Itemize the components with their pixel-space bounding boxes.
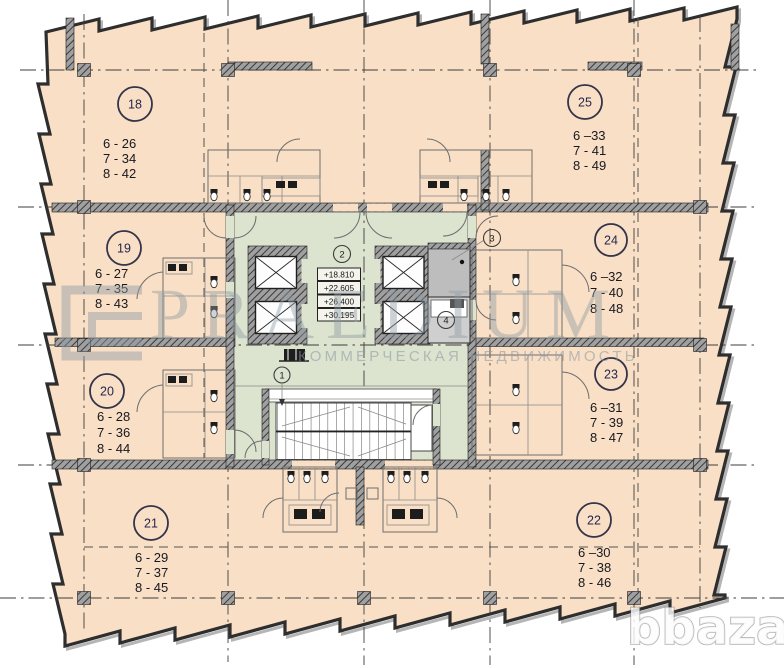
door-opening <box>262 441 269 458</box>
unit-number: 22 <box>587 514 601 528</box>
wall-segment <box>66 18 74 70</box>
counter-fixture <box>168 264 176 271</box>
column-marker <box>78 459 91 472</box>
basin-fixture <box>294 509 307 519</box>
column-marker <box>222 592 235 605</box>
counter-fixture <box>288 181 297 188</box>
unit-assignment: 7 - 39 <box>590 415 623 430</box>
wc-icon <box>304 471 311 483</box>
stair-treads-upper <box>276 403 411 431</box>
column-marker <box>222 64 235 77</box>
stair-treads-lower <box>276 432 411 460</box>
door-opening <box>226 430 234 454</box>
wc-icon <box>244 189 251 201</box>
door-opening <box>468 216 476 238</box>
unit-label-25: 25 6 –33 7 - 41 8 - 49 <box>568 85 606 173</box>
counter-fixture <box>179 264 187 271</box>
unit-number: 25 <box>578 96 592 110</box>
unit-assignment: 8 - 47 <box>590 430 623 445</box>
svg-text:1: 1 <box>279 371 284 382</box>
wc-icon <box>264 189 271 201</box>
unit-number: 18 <box>128 98 142 112</box>
basin-fixture <box>312 509 325 519</box>
unit-assignment: 7 - 38 <box>578 560 611 575</box>
wc-icon <box>461 189 468 201</box>
wc-icon <box>388 471 395 483</box>
wall-segment <box>52 460 708 469</box>
counter-fixture <box>276 181 285 188</box>
door-opening <box>443 204 467 212</box>
wall-segment <box>428 243 470 249</box>
unit-assignment: 6 - 26 <box>103 136 136 151</box>
wc-icon <box>513 422 520 434</box>
wc-icon <box>211 189 218 201</box>
column-marker <box>694 201 707 214</box>
unit-assignment: 6 - 28 <box>97 409 130 424</box>
unit-assignment: 7 - 36 <box>97 425 130 440</box>
door-opening <box>433 404 440 426</box>
wc-icon <box>503 189 510 201</box>
door-opening <box>226 216 234 238</box>
unit-assignment: 7 - 34 <box>103 151 136 166</box>
wc-icon <box>211 422 218 434</box>
column-marker <box>484 64 497 77</box>
wall-segment <box>228 62 312 70</box>
wc-icon <box>288 471 295 483</box>
unit-assignment: 6 –33 <box>573 128 606 143</box>
svg-text:2: 2 <box>339 250 344 261</box>
praedium-subtitle: КОММЕРЧЕСКАЯ НЕДВИЖИМОСТЬ <box>298 348 638 365</box>
counter-fixture <box>179 376 187 383</box>
basin-fixture <box>410 509 423 519</box>
column-marker <box>484 592 497 605</box>
wc-icon <box>322 471 329 483</box>
counter-fixture <box>168 376 176 383</box>
unit-label-20: 20 6 - 28 7 - 36 8 - 44 <box>90 374 130 456</box>
stair-wall <box>433 389 440 465</box>
unit-assignment: 6 - 29 <box>135 550 168 565</box>
unit-assignment: 6 –31 <box>590 400 623 415</box>
unit-number: 19 <box>117 242 131 256</box>
wc-icon <box>483 189 490 201</box>
stair-side-landing <box>411 405 432 451</box>
praedium-watermark: PRAEDIUM КОММЕРЧЕСКАЯ НЕДВИЖИМОСТЬ <box>66 274 638 365</box>
door-opening <box>367 204 392 212</box>
counter-fixture <box>440 181 449 188</box>
counter-fixture <box>428 181 437 188</box>
column-marker <box>628 64 641 77</box>
unit-assignment: 6 - 27 <box>95 266 128 281</box>
unit-assignment: 8 - 46 <box>578 575 611 590</box>
column-marker <box>358 592 371 605</box>
praedium-wordmark: PRAEDIUM <box>150 274 622 354</box>
wc-icon <box>513 384 520 396</box>
basin-fixture <box>392 509 405 519</box>
unit-assignment: 8 - 43 <box>95 296 128 311</box>
bbaza-watermark: bbaza <box>627 600 784 656</box>
unit-assignment: 8 - 42 <box>103 166 136 181</box>
column-marker <box>694 459 707 472</box>
column-marker <box>694 339 707 352</box>
unit-assignment: 7 - 37 <box>135 565 168 580</box>
column-marker <box>78 201 91 214</box>
unit-number: 23 <box>604 368 618 382</box>
column-marker <box>78 592 91 605</box>
unit-assignment: 8 - 44 <box>97 441 130 456</box>
stair-landing <box>266 389 436 402</box>
unit-number: 24 <box>604 234 618 248</box>
unit-label-23: 23 6 –31 7 - 39 8 - 47 <box>590 358 627 445</box>
unit-assignment: 8 - 49 <box>573 158 606 173</box>
wc-icon <box>404 471 411 483</box>
unit-number: 21 <box>144 517 158 531</box>
wall-segment <box>731 24 739 70</box>
door-opening <box>333 204 358 212</box>
unit-label-22: 22 6 –30 7 - 38 8 - 46 <box>577 503 611 590</box>
unit-number: 20 <box>100 385 114 399</box>
wall-segment <box>481 150 489 210</box>
wc-icon <box>211 390 218 402</box>
unit-assignment: 8 - 45 <box>135 580 168 595</box>
sensor-dot <box>460 260 464 264</box>
wc-icon <box>422 471 429 483</box>
floor-plan-canvas: +18.810 +22.605 +26.400 +30.195 2 3 4 <box>0 0 784 668</box>
unit-assignment: 6 –30 <box>578 545 611 560</box>
unit-label-21: 21 6 - 29 7 - 37 8 - 45 <box>134 506 168 595</box>
unit-assignment: 7 - 41 <box>573 143 606 158</box>
floor-plan-drawing: +18.810 +22.605 +26.400 +30.195 2 3 4 <box>0 0 784 668</box>
column-marker <box>78 64 91 77</box>
wall-segment <box>481 14 489 64</box>
svg-text:3: 3 <box>489 234 494 245</box>
